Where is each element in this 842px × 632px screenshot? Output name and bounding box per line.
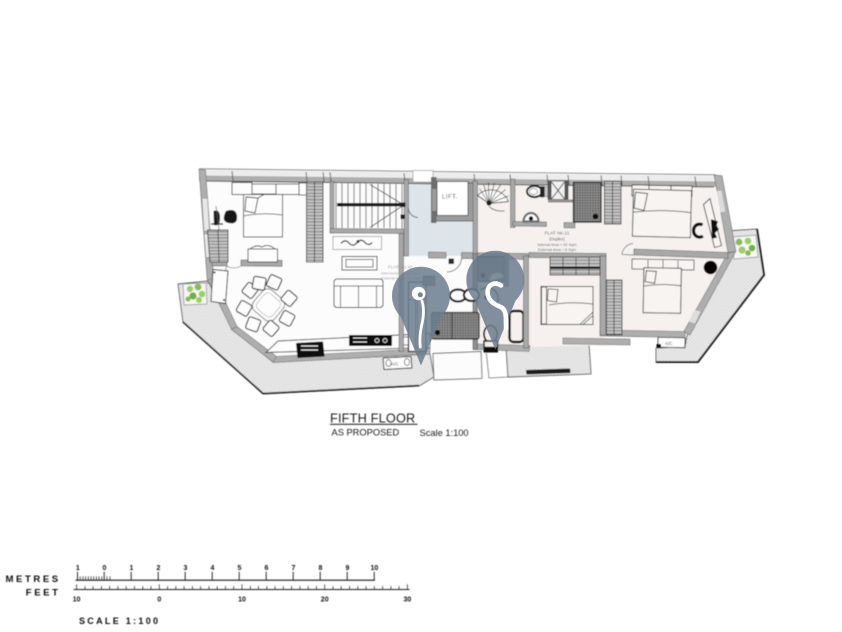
svg-text:AS PROPOSED: AS PROPOSED (332, 428, 400, 438)
svg-text:LIFT.: LIFT. (442, 195, 458, 201)
svg-text:FIFTH FLOOR: FIFTH FLOOR (330, 411, 415, 425)
svg-text:30: 30 (404, 597, 412, 604)
svg-text:A/C: A/C (665, 341, 673, 346)
svg-text:0: 0 (102, 565, 106, 572)
svg-text:7: 7 (291, 565, 295, 572)
svg-text:A/C: A/C (391, 362, 399, 367)
svg-text:10: 10 (73, 597, 81, 604)
svg-text:Internal Area = 92 Sqm: Internal Area = 92 Sqm (538, 243, 577, 247)
svg-text:10: 10 (238, 597, 246, 604)
svg-text:9: 9 (345, 565, 349, 572)
svg-text:External Area = 8 Sqm: External Area = 8 Sqm (538, 248, 576, 252)
svg-text:SCALE 1:100: SCALE 1:100 (79, 616, 160, 626)
svg-text:Scale 1:100: Scale 1:100 (420, 428, 469, 438)
svg-text:METRES: METRES (6, 574, 61, 585)
svg-text:20: 20 (321, 597, 329, 604)
svg-text:1: 1 (129, 565, 133, 572)
svg-text:FEET: FEET (26, 588, 61, 599)
svg-text:1: 1 (76, 565, 80, 572)
svg-text:10: 10 (371, 565, 379, 572)
svg-text:8: 8 (318, 565, 322, 572)
svg-text:6: 6 (264, 565, 268, 572)
svg-text:2: 2 (156, 565, 160, 572)
svg-text:3: 3 (183, 565, 187, 572)
svg-text:FLAT No.10: FLAT No.10 (388, 265, 413, 270)
svg-text:5: 5 (237, 565, 241, 572)
svg-text:(Duplex): (Duplex) (549, 237, 565, 242)
svg-text:0: 0 (157, 597, 161, 604)
svg-text:4: 4 (210, 565, 214, 572)
